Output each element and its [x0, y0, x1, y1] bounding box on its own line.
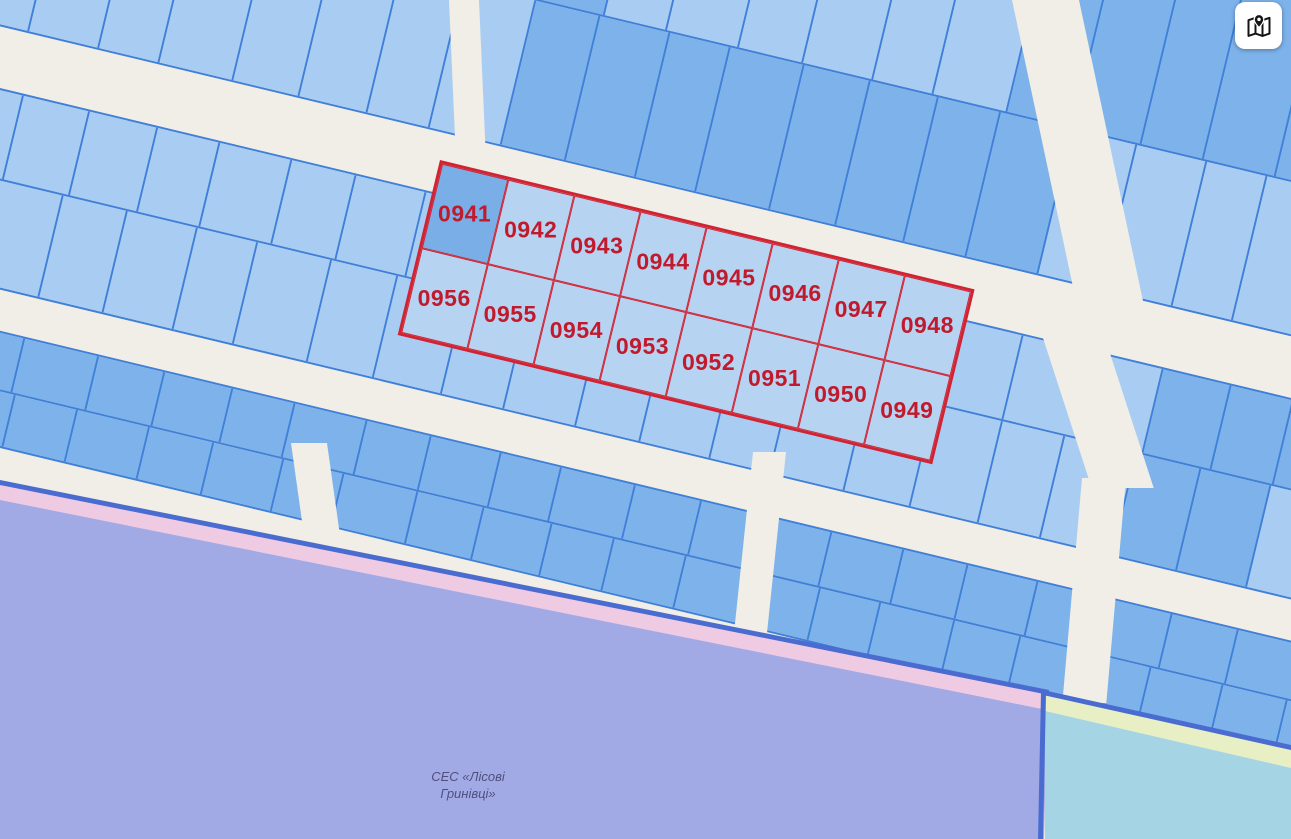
parcel-number-label: 0945	[703, 264, 756, 291]
parcel-number-label: 0942	[505, 216, 558, 243]
solar-area-label-line1: СЕС «Лісові	[368, 768, 568, 785]
map-location-icon	[1245, 12, 1273, 40]
parcel-number-label: 0941	[438, 200, 491, 227]
parcel-number-label: 0956	[418, 285, 471, 312]
solar-area-label-line2: Гринівці»	[368, 785, 568, 802]
parcel-number-label: 0943	[571, 232, 624, 259]
parcel-number-label: 0951	[748, 365, 801, 392]
parcel-number-label: 0944	[637, 248, 690, 275]
parcel-number-label: 0955	[484, 301, 537, 328]
parcel-number-label: 0949	[881, 397, 934, 424]
parcel-number-label: 0946	[769, 280, 822, 307]
parcel-number-label: 0947	[835, 296, 888, 323]
parcel-number-label: 0954	[550, 317, 603, 344]
layers-button[interactable]	[1235, 2, 1282, 49]
solar-area-label: СЕС «Лісові Гринівці»	[368, 768, 568, 802]
parcel-number-label: 0950	[815, 381, 868, 408]
parcel-number-label: 0952	[682, 349, 735, 376]
map-parcel[interactable]	[138, 427, 215, 494]
parcel-number-label: 0953	[616, 333, 669, 360]
map-canvas[interactable]: 0941094209430944094509460947094809560955…	[0, 0, 1291, 839]
map-parcel[interactable]	[406, 492, 484, 559]
parcel-number-label: 0948	[901, 312, 954, 339]
